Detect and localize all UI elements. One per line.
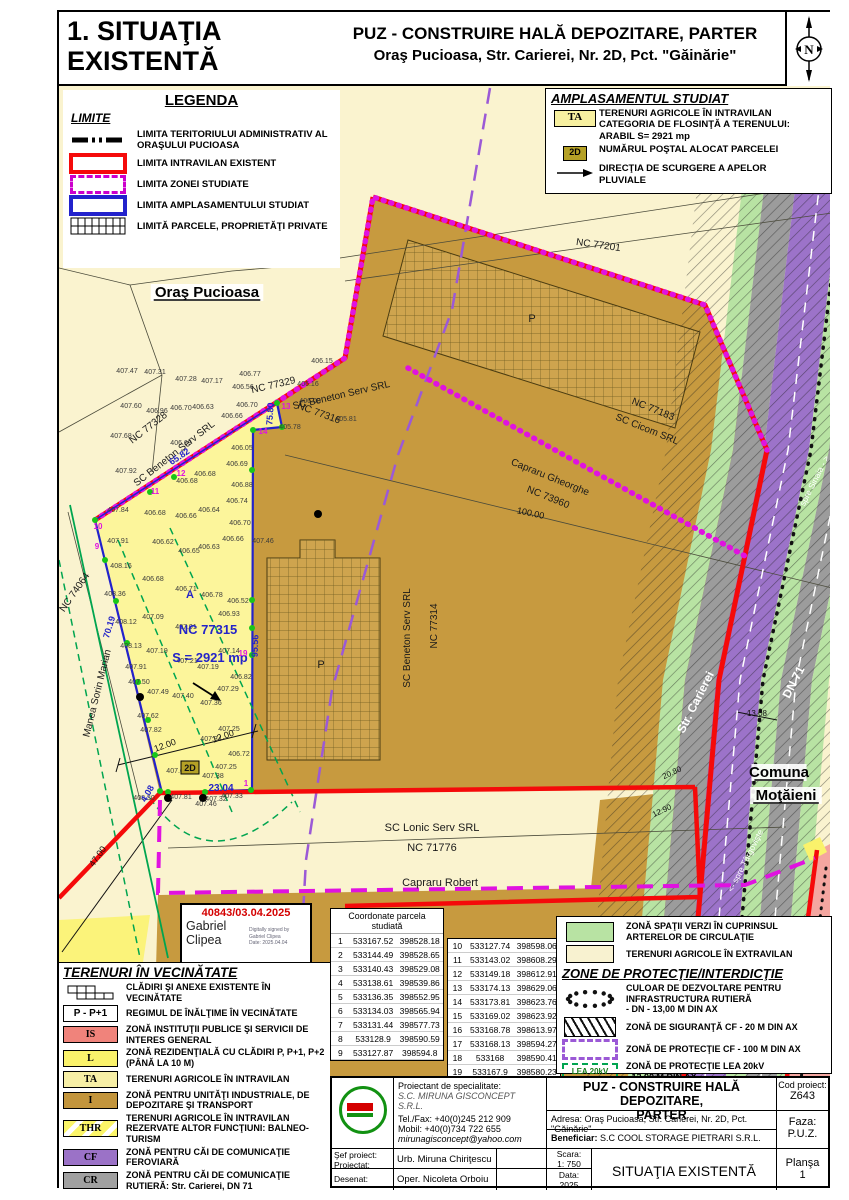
magdash-swatch (69, 175, 127, 193)
redrect-swatch (69, 154, 127, 172)
elevation-label: 406.77 (239, 371, 261, 378)
protection-item-label: ZONĂ DE PROTECŢIE CF - 100 M DIN AX (626, 1044, 801, 1055)
ta-text: TERENURI AGRICOLE ÎN INTRAVILANCATEGORIA… (599, 108, 790, 142)
dashdot-swatch (69, 131, 127, 149)
tb-sheet-number: Planşa1 (777, 1148, 828, 1190)
protection-item: ZONĂ DE PROTECŢIE CF - 100 M DIN AX (562, 1039, 826, 1059)
map-label: 13.08 (747, 709, 768, 718)
sheet-title-line2: EXISTENTĂ (67, 46, 325, 76)
building-mid (267, 540, 380, 760)
elevation-label: 407.60 (120, 403, 142, 410)
elevation-label: 407.31 (144, 369, 166, 376)
elevation-label: 408.36 (104, 591, 126, 598)
tb-scale: Scara:1: 750 (547, 1148, 592, 1168)
elevation-label: 407.19 (146, 648, 168, 655)
vicinity-items: CLĂDIRI ŞI ANEXE EXISTENTE ÎN VECINĂTATE… (63, 982, 326, 1191)
map-label: 19 (239, 649, 248, 658)
project-title: PUZ - CONSTRUIRE HALĂ DEPOZITARE, PARTER… (325, 12, 785, 84)
protection-items: CULOAR DE DEZVOLTARE PENTRU INFRASTRUCTU… (562, 983, 826, 1082)
elevation-label: 407.28 (175, 376, 197, 383)
elevation-label: 407.38 (202, 773, 224, 780)
elevation-label: 406.05 (231, 445, 253, 452)
zone-badge: CR (63, 1172, 118, 1189)
coord-row: 9533127.87398594.8 (331, 1046, 443, 1060)
coords-table-1: Coordonate parcela studiată 1533167.5239… (330, 908, 444, 1061)
coord-row: 10533127.74398598.06 (448, 939, 560, 953)
project-title-line2: Oraş Pucioasa, Str. Carierei, Nr. 2D, Pc… (325, 47, 785, 64)
legend-item-label: LIMITA AMPLASAMENTULUI STUDIAT (137, 200, 309, 211)
elevation-label: 406.66 (221, 413, 243, 420)
elevation-label: 407.47 (116, 368, 138, 375)
elevation-label: 407.82 (140, 727, 162, 734)
amplas-panel: AMPLASAMENTUL STUDIAT TA TERENURI AGRICO… (545, 88, 832, 194)
map-label: S = 2921 mp (172, 650, 248, 665)
tb-plan-title: SITUAŢIA EXISTENTĂ (592, 1148, 777, 1190)
TA-swatch: TA (63, 1071, 118, 1088)
protection-item: CULOAR DE DEZVOLTARE PENTRU INFRASTRUCTU… (562, 983, 826, 1015)
vicinity-item: ISZONĂ INSTITUŢII PUBLICE ŞI SERVICII DE… (63, 1024, 326, 1045)
elevation-label: 407.92 (115, 468, 137, 475)
green-zone-swatch (566, 922, 614, 942)
elevation-label: 406.68 (176, 478, 198, 485)
coord-row: 15533169.02398623.92 (448, 1009, 560, 1023)
elevation-label: 407.84 (107, 507, 129, 514)
tb-date: Data:2025 (547, 1168, 592, 1190)
elevation-label: 405.78 (279, 424, 301, 431)
north-arrow-icon: N (787, 12, 832, 86)
elevation-label: 406.66 (175, 513, 197, 520)
elevation-label: 406.78 (201, 592, 223, 599)
coord-row: 7533131.44398577.73 (331, 1018, 443, 1032)
tb-project-title: PUZ - CONSTRUIRE HALĂ DEPOZITARE,PARTER (547, 1078, 777, 1110)
vicinity-item: THRTERENURI AGRICOLE ÎN INTRAVILAN REZER… (63, 1113, 326, 1145)
map-label: A (186, 589, 194, 601)
elevation-label: 408.12 (115, 619, 137, 626)
map-label: P (528, 313, 535, 325)
digital-signature: Digitally signed byGabriel ClipeaDate: 2… (249, 927, 307, 947)
elevation-label: 407.62 (137, 713, 159, 720)
elevation-label: 407.19 (197, 664, 219, 671)
vicinity-title: TERENURI ÎN VECINĂTATE (63, 965, 326, 980)
flow-arrow-icon (551, 163, 599, 186)
map-label: 75.80 (264, 402, 276, 425)
tb-chief-label: Şef proiect:Proiectat: (332, 1148, 394, 1168)
sheet-title: 1. SITUAŢIA EXISTENTĂ (59, 12, 325, 84)
map-label: NC 77314 (429, 603, 440, 648)
zone-badge: L (63, 1050, 118, 1067)
zone-badge: TA (63, 1071, 118, 1088)
coord-row: 4533138.61398539.86 (331, 976, 443, 990)
map-label: P (317, 659, 324, 671)
coords-table-2: 10533127.74398598.0611533143.02398608.29… (447, 938, 561, 1080)
hatch-swatch (562, 1017, 618, 1037)
tb-project-code: Cod proiect:Z643 (777, 1078, 828, 1110)
tb-beneficiary: Beneficiar: S.C COOL STORAGE PIETRARI S.… (547, 1129, 777, 1148)
elevation-label: 407.46 (195, 801, 217, 808)
vicinity-item-label: CLĂDIRI ŞI ANEXE EXISTENTE ÎN VECINĂTATE (126, 982, 326, 1003)
stamp-number: 40843/03.04.2025 (186, 907, 306, 919)
postal-badge-label: 2D (184, 763, 196, 773)
amplas-title: AMPLASAMENTUL STUDIAT (551, 91, 826, 106)
elevation-label: 407.25 (215, 764, 237, 771)
protection-item-label: CULOAR DE DEZVOLTARE PENTRU INFRASTRUCTU… (626, 983, 826, 1015)
map-label: NC 71776 (407, 842, 457, 854)
map-label: NC 77315 (179, 622, 238, 637)
coord-row: 14533173.81398623.76 (448, 995, 560, 1009)
map-label: SC Beneton Serv SRL (402, 588, 413, 688)
coord-row: 1533167.52398528.18 (331, 934, 443, 948)
elevation-label: 406.88 (231, 482, 253, 489)
vicinity-item-label: TERENURI AGRICOLE ÎN INTRAVILAN REZERVAT… (126, 1113, 326, 1145)
vicinity-item-label: ZONĂ PENTRU UNITĂŢI INDUSTRIALE, DE DEPO… (126, 1090, 326, 1111)
map-label: Moţăieni (756, 787, 817, 804)
coord-row: 12533149.18398612.91 (448, 967, 560, 981)
vicinity-item: CFZONĂ PENTRU CĂI DE COMUNICAŢIE FEROVIA… (63, 1147, 326, 1168)
elevation-label: 406.62 (152, 539, 174, 546)
coord-row: 18533168398590.41 (448, 1051, 560, 1065)
elevation-label: 407.46 (252, 538, 274, 545)
elevation-label: 406.66 (222, 536, 244, 543)
svg-text:N: N (804, 42, 814, 57)
elevation-label: 406.15 (311, 358, 333, 365)
bluerect-swatch (69, 196, 127, 214)
map-label: 11 (151, 487, 160, 496)
legend-item: LIMITA AMPLASAMENTULUI STUDIAT (69, 196, 334, 214)
elevation-label: 406.68 (142, 576, 164, 583)
vicinity-item-label: ZONĂ INSTITUŢII PUBLICE ŞI SERVICII DE I… (126, 1024, 326, 1045)
elevation-label: 406.64 (198, 507, 220, 514)
legend-title: LEGENDA (69, 92, 334, 109)
buildings-swatch (63, 984, 118, 1001)
map-label: 13 (282, 402, 291, 411)
tb-address: Adresa: Oraş Pucioasa, Str. Carierei, Nr… (547, 1110, 777, 1129)
elevation-label: 407.49 (147, 689, 169, 696)
tb-chief-name: Urb. Miruna Chiriţescu (394, 1148, 497, 1168)
elevation-label: 406.69 (226, 461, 248, 468)
elevation-label: 406.52 (227, 598, 249, 605)
vicinity-item-label: ZONĂ PENTRU CĂI DE COMUNICAŢIE RUTIERĂ: … (126, 1170, 326, 1191)
elevation-label: 407.81 (170, 794, 192, 801)
map-label: Capraru Robert (402, 877, 478, 889)
THR-swatch: THR (63, 1120, 118, 1137)
elevation-label: 407.40 (172, 693, 194, 700)
elevation-label: 407.29 (217, 686, 239, 693)
legend-subtitle: LIMITE (71, 111, 334, 125)
map-label: SC Lonic Serv SRL (385, 822, 480, 834)
legend-item-label: LIMITA TERITORIULUI ADMINISTRATIV AL ORA… (137, 129, 334, 151)
elevation-label: 406.68 (194, 471, 216, 478)
legend-item: LIMITA TERITORIULUI ADMINISTRATIV AL ORA… (69, 129, 334, 151)
legend-item-label: LIMITA ZONEI STUDIATE (137, 179, 249, 190)
coord-row: 5533136.35398552.95 (331, 990, 443, 1004)
protection-title: ZONE DE PROTECŢIE/INTERDICŢIE (562, 966, 826, 981)
designer-info: Proiectant de specialitate: S.C. MIRUNA … (394, 1078, 547, 1148)
pdash-swatch (562, 1039, 618, 1059)
elevation-label: 407.50 (128, 679, 150, 686)
zone-badge: IS (63, 1026, 118, 1043)
protection-item: ZONĂ DE SIGURANŢĂ CF - 20 M DIN AX (562, 1017, 826, 1037)
legend-item: LIMITĂ PARCELE, PROPRIETĂŢI PRIVATE (69, 217, 334, 235)
title-block: Proiectant de specialitate: S.C. MIRUNA … (330, 1076, 830, 1188)
vicinity-panel: TERENURI ÎN VECINĂTATE CLĂDIRI ŞI ANEXE … (59, 962, 330, 1188)
coord-row: 2533144.49398528.65 (331, 948, 443, 962)
header: 1. SITUAŢIA EXISTENTĂ PUZ - CONSTRUIRE H… (59, 12, 785, 86)
dots-swatch (562, 989, 618, 1009)
elevation-label: 406.63 (198, 544, 220, 551)
legend-item: LIMITA INTRAVILAN EXISTENT (69, 154, 334, 172)
legend-items: LIMITA TERITORIULUI ADMINISTRATIV AL ORA… (69, 129, 334, 235)
vicinity-item: IZONĂ PENTRU UNITĂŢI INDUSTRIALE, DE DEP… (63, 1090, 326, 1111)
elevation-label: 406.70 (229, 520, 251, 527)
flow-arrow-text: DIRECŢIA DE SCURGERE A APELORPLUVIALE (599, 163, 767, 186)
legend-item-label: LIMITĂ PARCELE, PROPRIETĂŢI PRIVATE (137, 221, 328, 232)
postal-badge-text: NUMĂRUL POŞTAL ALOCAT PARCELEI (599, 144, 778, 161)
elevation-label: 406.70 (170, 405, 192, 412)
tb-drawn-label: Desenat: (332, 1168, 394, 1190)
CR-swatch: CR (63, 1172, 118, 1189)
elevation-label: 406.16 (297, 381, 319, 388)
elevation-label: 407.91 (107, 538, 129, 545)
map-label: Comuna (749, 764, 810, 781)
map-label: 95.56 (250, 634, 261, 657)
vicinity-item-label: ZONĂ REZIDENŢIALĂ CU CLĂDIRI P, P+1, P+2… (126, 1047, 326, 1068)
map-label: 12 (177, 469, 186, 478)
legend-limits-panel: LEGENDA LIMITE LIMITA TERITORIULUI ADMIN… (63, 90, 340, 268)
vicinity-item: LZONĂ REZIDENŢIALĂ CU CLĂDIRI P, P+1, P+… (63, 1047, 326, 1068)
elevation-label: 406.72 (228, 751, 250, 758)
vicinity-item: P - P+1REGIMUL DE ÎNĂLŢIME ÎN VECINĂTATE (63, 1005, 326, 1022)
green-zone-row: ZONĂ SPAŢII VERZI ÎN CUPRINSUL ARTERELOR… (562, 921, 826, 942)
coord-row: 17533168.13398594.27 (448, 1037, 560, 1051)
plan-sheet: 1. SITUAŢIA EXISTENTĂ PUZ - CONSTRUIRE H… (0, 0, 849, 1200)
height-badge: P - P+1 (63, 1005, 118, 1022)
elevation-label: 407.91 (125, 664, 147, 671)
project-title-line1: PUZ - CONSTRUIRE HALĂ DEPOZITARE, PARTER (325, 24, 785, 44)
L-swatch: L (63, 1050, 118, 1067)
elevation-label: 406.82 (230, 674, 252, 681)
vicinity-item: CLĂDIRI ŞI ANEXE EXISTENTE ÎN VECINĂTATE (63, 982, 326, 1003)
coord-row: 3533140.43398529.08 (331, 962, 443, 976)
coord-row: 16533168.78398613.97 (448, 1023, 560, 1037)
P - P+1-swatch: P - P+1 (63, 1005, 118, 1022)
extravilan-row: TERENURI AGRICOLE ÎN EXTRAVILAN (562, 944, 826, 964)
zone-badge: CF (63, 1149, 118, 1166)
coord-row: 11533143.02398608.29 (448, 953, 560, 967)
I-swatch: I (63, 1092, 118, 1109)
legend-item-label: LIMITA INTRAVILAN EXISTENT (137, 158, 276, 169)
north-arrow: N (785, 12, 830, 86)
extravilan-swatch (566, 945, 614, 963)
tb-drawn-name: Oper. Nicoleta Orboiu (394, 1168, 497, 1190)
coords-title: Coordonate parcela studiată (331, 909, 443, 934)
sheet-title-line1: 1. SITUAŢIA (67, 16, 325, 46)
vicinity-item: TATERENURI AGRICOLE ÎN INTRAVILAN (63, 1071, 326, 1088)
legend-item: LIMITA ZONEI STUDIATE (69, 175, 334, 193)
map-label: Oraş Pucioasa (155, 284, 260, 301)
vicinity-item: CRZONĂ PENTRU CĂI DE COMUNICAŢIE RUTIERĂ… (63, 1170, 326, 1191)
map-label: 10 (94, 522, 103, 531)
elevation-label: 406.93 (218, 611, 240, 618)
elevation-label: 407.09 (142, 614, 164, 621)
tb-empty-2 (497, 1168, 547, 1190)
coord-row: 13533174.13398629.06 (448, 981, 560, 995)
grid-swatch (69, 217, 127, 235)
company-logo (332, 1078, 394, 1148)
zone-badge: I (63, 1092, 118, 1109)
map-label: 1 (244, 779, 249, 788)
vicinity-item-label: REGIMUL DE ÎNĂLŢIME ÎN VECINĂTATE (126, 1008, 298, 1019)
map-label: 23.04 (208, 783, 233, 794)
elevation-label: 408.16 (110, 563, 132, 570)
elevation-label: 408.13 (120, 643, 142, 650)
coord-row: 6533134.03398565.94 (331, 1004, 443, 1018)
vicinity-item-label: ZONĂ PENTRU CĂI DE COMUNICAŢIE FEROVIARĂ (126, 1147, 326, 1168)
protection-item-label: ZONĂ DE SIGURANŢĂ CF - 20 M DIN AX (626, 1022, 798, 1033)
tb-empty-1 (497, 1148, 547, 1168)
ta-swatch: TA (554, 110, 596, 127)
IS-swatch: IS (63, 1026, 118, 1043)
elevation-label: 407.36 (200, 700, 222, 707)
elevation-label: 406.65 (178, 548, 200, 555)
thr-badge: THR (63, 1120, 118, 1137)
map-label: 14 (259, 427, 268, 436)
postal-badge-swatch: 2D (563, 146, 587, 161)
elevation-label: 406.70 (236, 402, 258, 409)
vicinity-item-label: TERENURI AGRICOLE ÎN INTRAVILAN (126, 1074, 290, 1085)
elevation-label: 406.63 (192, 404, 214, 411)
tb-phase: Faza:P.U.Z. (777, 1110, 828, 1148)
approval-stamp: 40843/03.04.2025 GabrielClipea Digitally… (180, 903, 312, 965)
map-label: 9 (95, 542, 100, 551)
CF-swatch: CF (63, 1149, 118, 1166)
elevation-label: 407.33 (221, 793, 243, 800)
protection-panel: ZONĂ SPAŢII VERZI ÎN CUPRINSUL ARTERELOR… (556, 916, 832, 1074)
elevation-label: 406.74 (226, 498, 248, 505)
elevation-label: 407.17 (201, 378, 223, 385)
elevation-label: 406.68 (144, 510, 166, 517)
coord-row: 8533128.9398590.59 (331, 1032, 443, 1046)
